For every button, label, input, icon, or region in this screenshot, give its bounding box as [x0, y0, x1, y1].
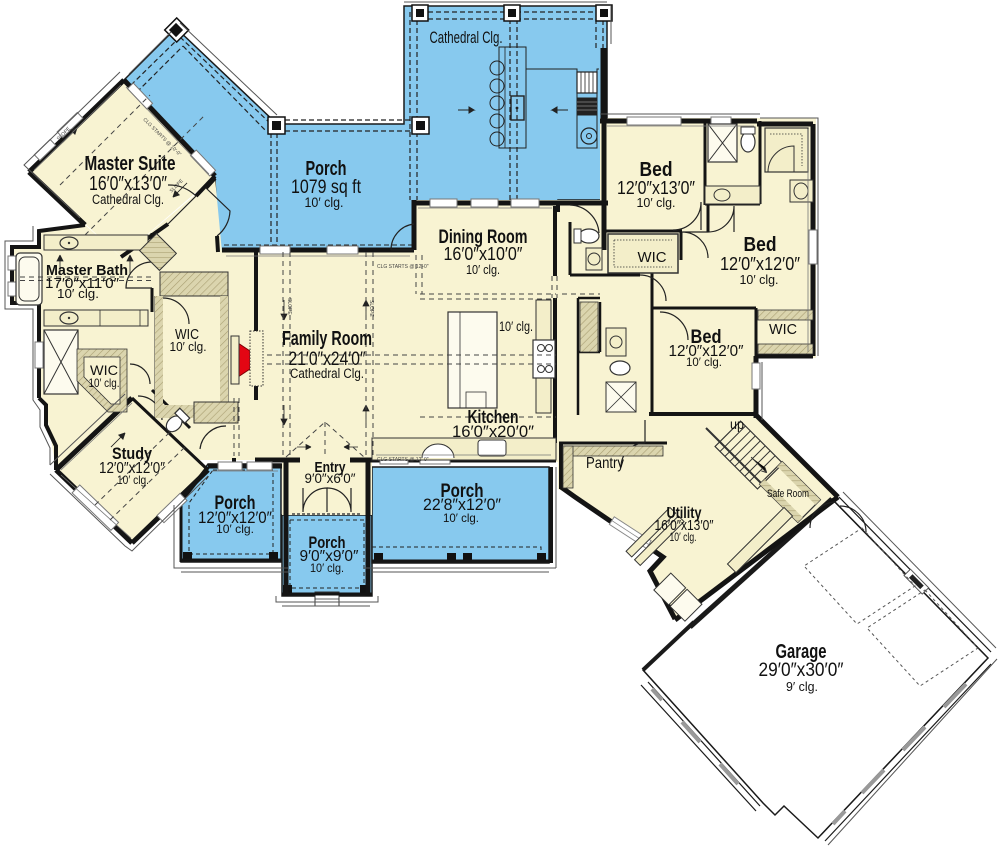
svg-text:Pantry: Pantry [586, 455, 624, 472]
svg-text:16′0″x20′0″: 16′0″x20′0″ [452, 422, 534, 441]
svg-text:WIC: WIC [769, 321, 797, 338]
svg-text:10′ clg.: 10′ clg. [170, 340, 207, 354]
svg-text:Family Room: Family Room [282, 328, 372, 350]
svg-text:CLG STARTS @ 12'-0": CLG STARTS @ 12'-0" [377, 457, 429, 463]
svg-text:12′0″x12′0″: 12′0″x12′0″ [720, 254, 801, 274]
svg-text:10′ clg.: 10′ clg. [310, 561, 344, 575]
svg-text:10′ clg.: 10′ clg. [466, 262, 500, 277]
svg-text:9′0″x6′0″: 9′0″x6′0″ [305, 470, 356, 486]
svg-text:10′ clg.: 10′ clg. [686, 355, 722, 369]
svg-text:16′0″x10′0″: 16′0″x10′0″ [444, 244, 524, 264]
svg-text:up: up [730, 416, 744, 432]
svg-text:Bed: Bed [744, 234, 777, 256]
svg-text:10′ clg.: 10′ clg. [443, 511, 479, 525]
svg-text:Cathedral Clg.: Cathedral Clg. [92, 192, 164, 207]
svg-text:10′ clg.: 10′ clg. [305, 195, 344, 210]
svg-text:10′ clg.: 10′ clg. [499, 318, 533, 334]
svg-text:10′ clg.: 10′ clg. [216, 522, 254, 536]
svg-text:10′ clg.: 10′ clg. [57, 287, 99, 301]
svg-text:Safe Room: Safe Room [767, 488, 809, 500]
svg-text:29′0″x30′0″: 29′0″x30′0″ [759, 660, 844, 681]
svg-text:SLOPE: SLOPE [286, 298, 292, 315]
svg-text:10′ clg.: 10′ clg. [740, 272, 779, 287]
svg-text:Cathedral Clg.: Cathedral Clg. [290, 366, 364, 381]
svg-text:10′ clg.: 10′ clg. [637, 195, 676, 210]
svg-text:Cathedral Clg.: Cathedral Clg. [430, 28, 503, 47]
svg-text:Master Suite: Master Suite [85, 153, 176, 175]
svg-text:10′ clg.: 10′ clg. [670, 530, 697, 544]
svg-text:10′ clg.: 10′ clg. [117, 473, 149, 487]
svg-text:WIC: WIC [638, 249, 667, 266]
svg-text:9′ clg.: 9′ clg. [786, 679, 818, 694]
svg-text:10′ clg.: 10′ clg. [89, 376, 120, 390]
svg-text:CLG STARTS @ 12'-0": CLG STARTS @ 12'-0" [377, 264, 429, 270]
